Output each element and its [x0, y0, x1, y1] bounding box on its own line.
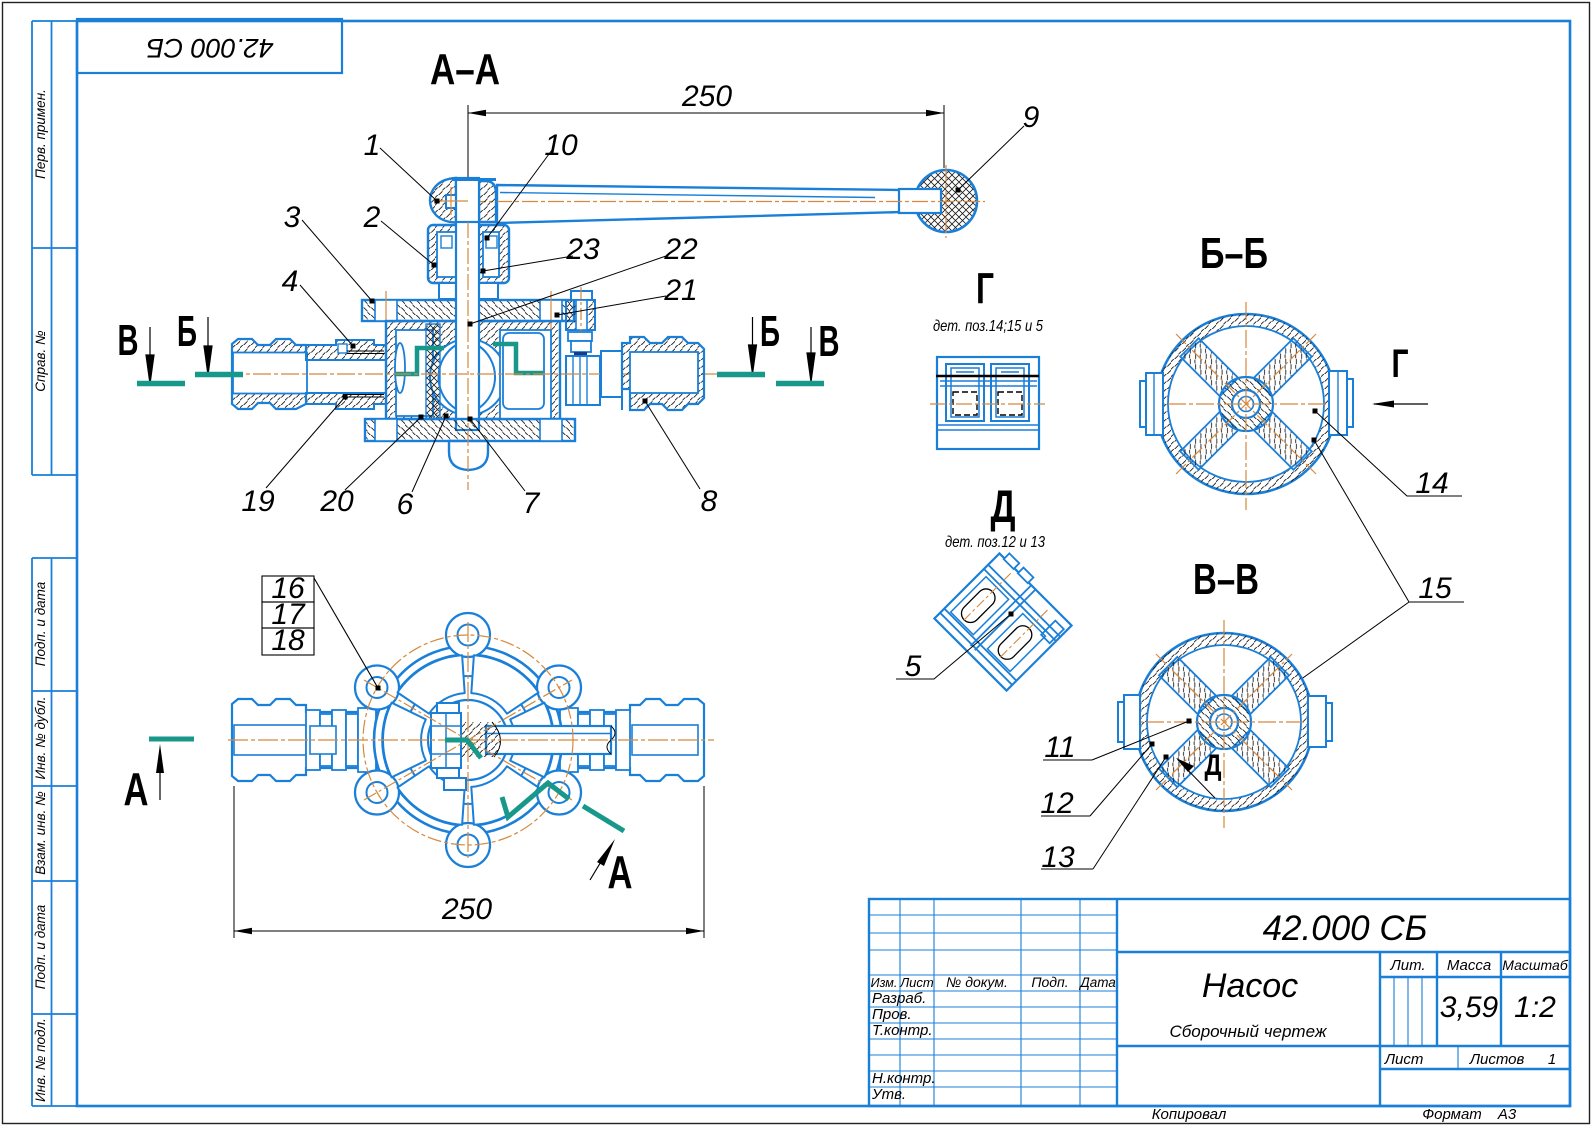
- svg-text:В: В: [118, 316, 139, 365]
- svg-text:Б: Б: [177, 307, 197, 356]
- svg-text:Инв. № дубл.: Инв. № дубл.: [33, 696, 48, 779]
- svg-text:11: 11: [1044, 731, 1075, 764]
- svg-text:Масса: Масса: [1447, 957, 1491, 974]
- svg-text:Лист: Лист: [1384, 1051, 1424, 1068]
- svg-text:Лит.: Лит.: [1389, 957, 1425, 974]
- svg-text:12: 12: [1040, 787, 1074, 820]
- svg-text:А: А: [124, 763, 149, 815]
- svg-text:Лист: Лист: [899, 975, 934, 990]
- svg-text:22: 22: [663, 233, 698, 266]
- svg-text:Г: Г: [976, 264, 994, 313]
- svg-text:В: В: [819, 317, 840, 366]
- svg-text:1:2: 1:2: [1514, 991, 1556, 1024]
- svg-text:8: 8: [701, 485, 718, 518]
- svg-text:А: А: [608, 846, 633, 898]
- svg-text:21: 21: [663, 274, 697, 307]
- svg-text:Изм.: Изм.: [871, 976, 898, 990]
- svg-text:1: 1: [1548, 1051, 1556, 1068]
- svg-text:23: 23: [565, 233, 600, 266]
- svg-text:42.000 СБ: 42.000 СБ: [1263, 909, 1428, 948]
- svg-text:Д: Д: [1205, 749, 1222, 782]
- svg-text:19: 19: [241, 485, 275, 518]
- svg-text:14: 14: [1415, 467, 1448, 500]
- svg-text:Н.контр.: Н.контр.: [872, 1070, 936, 1087]
- svg-text:Инв. № подл.: Инв. № подл.: [33, 1018, 48, 1102]
- svg-text:10: 10: [544, 129, 578, 162]
- svg-text:Д: Д: [991, 480, 1016, 532]
- svg-text:Перв. примен.: Перв. примен.: [33, 89, 48, 179]
- svg-text:Формат: Формат: [1422, 1106, 1482, 1123]
- svg-text:Взам. инв. №: Взам. инв. №: [33, 791, 48, 875]
- svg-text:Г: Г: [1392, 342, 1409, 386]
- svg-text:15: 15: [1418, 572, 1452, 605]
- svg-text:9: 9: [1023, 101, 1040, 134]
- svg-text:В–В: В–В: [1193, 555, 1259, 604]
- svg-text:42.000 СБ: 42.000 СБ: [146, 33, 273, 63]
- svg-text:250: 250: [681, 80, 732, 113]
- svg-text:Б–Б: Б–Б: [1200, 229, 1268, 278]
- svg-text:20: 20: [319, 485, 354, 518]
- svg-text:3,59: 3,59: [1440, 991, 1499, 1024]
- svg-text:6: 6: [397, 488, 414, 521]
- svg-text:Листов: Листов: [1469, 1051, 1525, 1068]
- svg-text:4: 4: [282, 265, 299, 298]
- svg-text:дет. поз.12 и 13: дет. поз.12 и 13: [945, 534, 1045, 551]
- svg-text:18: 18: [271, 624, 305, 657]
- svg-text:Подп. и дата: Подп. и дата: [33, 904, 48, 989]
- svg-text:Подп. и дата: Подп. и дата: [33, 581, 48, 666]
- svg-text:Насос: Насос: [1202, 967, 1298, 1005]
- svg-text:Утв.: Утв.: [871, 1086, 906, 1103]
- svg-text:Пров.: Пров.: [872, 1006, 912, 1023]
- svg-text:Т.контр.: Т.контр.: [872, 1022, 933, 1039]
- svg-text:250: 250: [441, 893, 492, 926]
- svg-text:дет. поз.14;15 и 5: дет. поз.14;15 и 5: [933, 318, 1043, 335]
- svg-text:Подп.: Подп.: [1031, 974, 1068, 990]
- svg-text:Масштаб: Масштаб: [1502, 957, 1569, 973]
- svg-text:3: 3: [284, 201, 301, 234]
- svg-text:Копировал: Копировал: [1152, 1106, 1227, 1123]
- svg-text:2: 2: [363, 201, 381, 234]
- svg-text:№ докум.: № докум.: [946, 974, 1008, 990]
- svg-text:13: 13: [1041, 841, 1075, 874]
- svg-text:А–А: А–А: [430, 45, 500, 94]
- svg-text:А3: А3: [1497, 1106, 1517, 1123]
- svg-text:5: 5: [905, 650, 922, 683]
- svg-text:7: 7: [523, 487, 541, 520]
- svg-text:Б: Б: [760, 307, 780, 356]
- svg-text:Дата: Дата: [1078, 975, 1116, 990]
- svg-text:Сборочный чертеж: Сборочный чертеж: [1169, 1022, 1327, 1041]
- svg-text:Справ. №: Справ. №: [33, 330, 48, 392]
- svg-text:Разраб.: Разраб.: [872, 990, 926, 1007]
- svg-text:1: 1: [364, 129, 381, 162]
